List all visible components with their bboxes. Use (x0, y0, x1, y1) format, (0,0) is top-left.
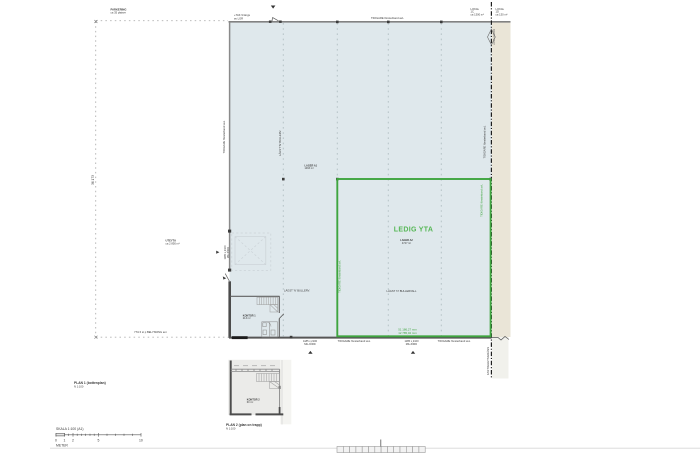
svg-text:TIDIGARE fönsterband avL: TIDIGARE fönsterband avL (338, 339, 371, 343)
svg-text:TIDIGARE fönsterband avL: TIDIGARE fönsterband avL (438, 339, 471, 343)
svg-text:1185 x 2100: 1185 x 2100 (404, 339, 419, 343)
svg-text:SKALA 1:100 (A1): SKALA 1:100 (A1) (56, 427, 84, 431)
svg-text:TIDIGARE fönsterband avL: TIDIGARE fönsterband avL (371, 16, 404, 20)
svg-text:METER: METER (56, 444, 68, 448)
svg-text:36 173: 36 173 (91, 175, 95, 185)
svg-text:0: 0 (55, 439, 57, 443)
svg-text:LÄGST 'N' BULLERVALL: LÄGST 'N' BULLERVALL (387, 289, 418, 293)
svg-text:TIDIGARE fönsterband avL: TIDIGARE fönsterband avL (338, 260, 342, 293)
svg-text:LEDIG YTA: LEDIG YTA (394, 226, 433, 233)
svg-text:1185 x 2100: 1185 x 2100 (303, 339, 318, 343)
svg-text:213 m²: 213 m² (243, 317, 251, 320)
svg-text:N 1:100: N 1:100 (74, 385, 84, 389)
svg-text:LÄGST 'N' BULLERV.: LÄGST 'N' BULLERV. (284, 288, 310, 292)
svg-text:MILJÖRD: MILJÖRD (226, 247, 230, 259)
svg-text:PLAN 2 (plan on trapp): PLAN 2 (plan on trapp) (226, 423, 262, 427)
svg-text:MILJÖRD: MILJÖRD (406, 342, 418, 346)
svg-text:4747 m²: 4747 m² (402, 242, 411, 245)
svg-text:1: 1 (64, 439, 66, 443)
svg-text:2: 2 (72, 439, 74, 443)
svg-text:10: 10 (139, 439, 143, 443)
svg-text:PLAN 1 (bottenplan): PLAN 1 (bottenplan) (74, 381, 106, 385)
svg-text:FASTIGHETSGRÄNS: FASTIGHETSGRÄNS (486, 347, 490, 375)
svg-text:av LGR: av LGR (234, 17, 243, 21)
svg-text:ca 2 850 m²: ca 2 850 m² (166, 241, 180, 245)
svg-text:12 785,02 mm: 12 785,02 mm (398, 331, 417, 335)
svg-text:1463 m²: 1463 m² (305, 167, 314, 170)
svg-text:60 m²: 60 m² (247, 401, 254, 404)
svg-text:TIDIGARE fönsterband avL: TIDIGARE fönsterband avL (480, 184, 484, 217)
svg-text:YTA 6 st p BELYSNING avt: YTA 6 st p BELYSNING avt (134, 330, 167, 334)
svg-text:N 1:100: N 1:100 (226, 427, 236, 431)
svg-text:ca 35 platser: ca 35 platser (111, 11, 126, 15)
svg-text:ca 130 m²: ca 130 m² (496, 13, 508, 17)
svg-text:LÄGST 'N' BULLERV.: LÄGST 'N' BULLERV. (278, 130, 282, 156)
svg-text:MILJÖRD: MILJÖRD (304, 342, 316, 346)
svg-text:5: 5 (98, 439, 100, 443)
svg-text:LOKALGRÄNS: LOKALGRÄNS (493, 28, 496, 45)
svg-text:ca 1300 m²: ca 1300 m² (471, 13, 485, 17)
svg-text:TIDIGARE fönsterband avL: TIDIGARE fönsterband avL (483, 125, 487, 158)
svg-text:TIDIGARE fönsterband avL: TIDIGARE fönsterband avL (222, 120, 226, 153)
